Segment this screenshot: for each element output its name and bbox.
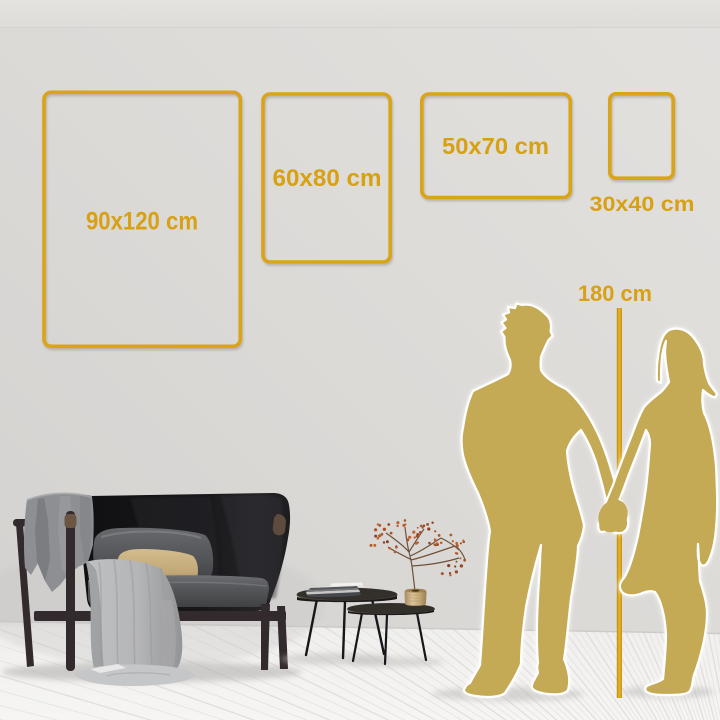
svg-text:50x70 cm: 50x70 cm	[442, 133, 549, 159]
svg-text:60x80 cm: 60x80 cm	[273, 165, 382, 192]
svg-text:180 cm: 180 cm	[578, 281, 652, 306]
svg-text:30x40 cm: 30x40 cm	[590, 191, 695, 216]
svg-text:90x120 cm: 90x120 cm	[86, 209, 198, 236]
